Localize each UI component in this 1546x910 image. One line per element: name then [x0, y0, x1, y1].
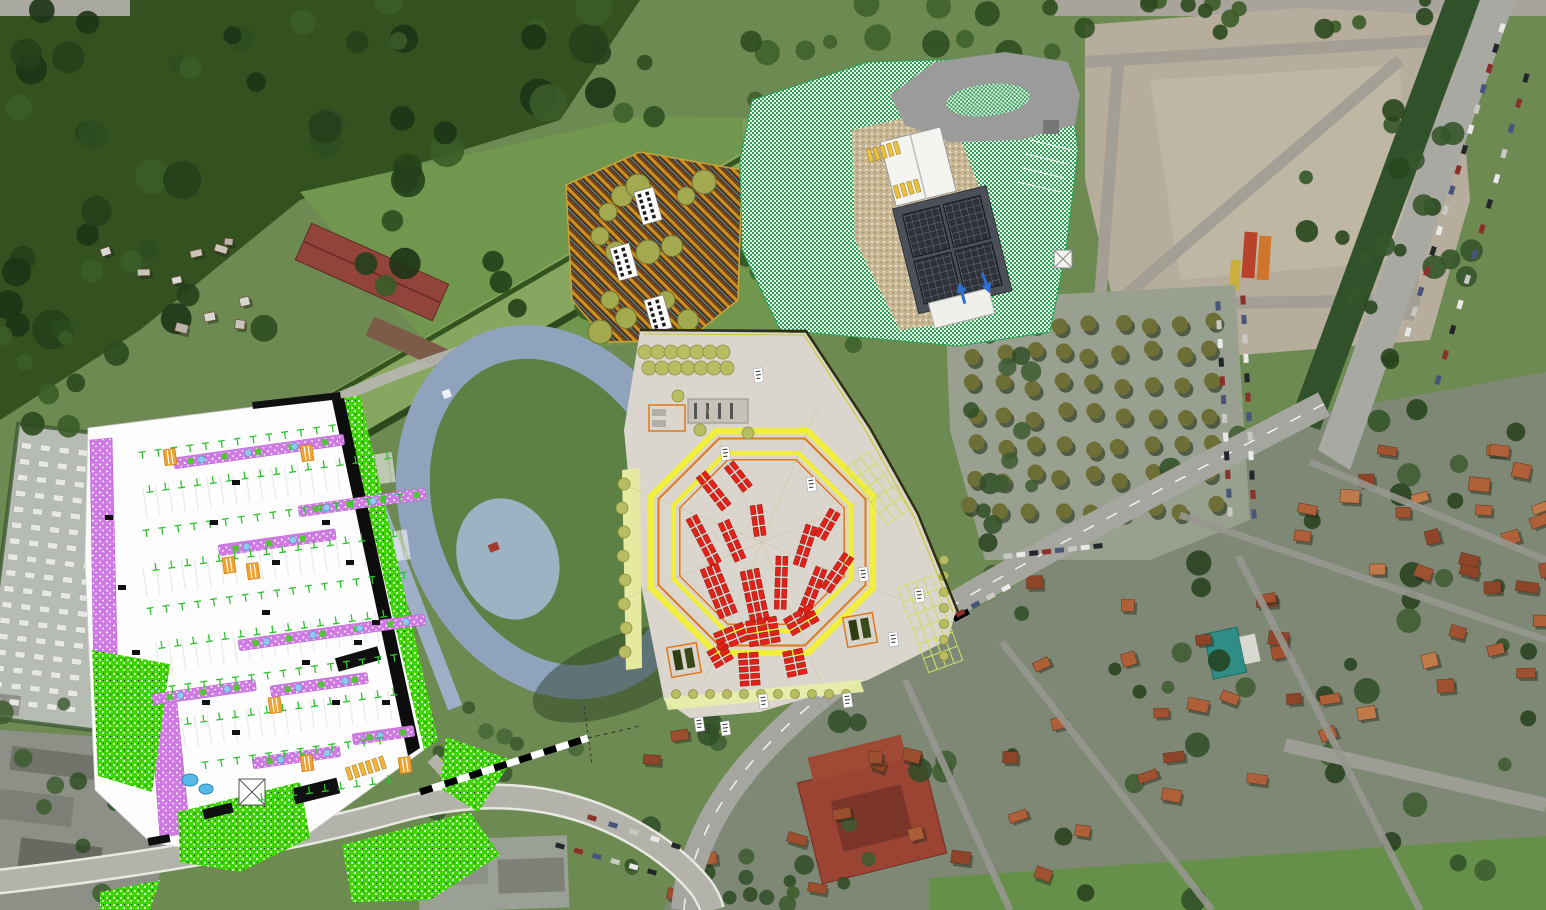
grave	[41, 590, 52, 597]
grave	[28, 540, 39, 547]
plan-tree	[825, 690, 834, 699]
tree	[36, 799, 52, 815]
market-stall	[782, 578, 787, 587]
tree	[389, 248, 420, 279]
market-stall	[782, 567, 787, 576]
grave	[24, 572, 35, 579]
tree	[1198, 3, 1213, 18]
grave	[76, 465, 87, 472]
shrub-square	[187, 458, 194, 465]
tree	[995, 408, 1011, 424]
plan-tree	[720, 361, 734, 375]
truck-stand	[667, 643, 702, 678]
plan-tree	[694, 361, 708, 375]
tree	[1382, 99, 1405, 122]
grave	[37, 622, 48, 629]
tree	[1020, 504, 1036, 520]
shrub-square	[400, 729, 407, 736]
orange-marker	[268, 696, 282, 714]
plan-tree	[940, 652, 949, 661]
grave	[69, 674, 80, 681]
tree	[1172, 642, 1192, 662]
tree	[1368, 410, 1391, 433]
market-stall	[757, 504, 763, 514]
house-roof	[1154, 708, 1169, 718]
tree	[1178, 410, 1194, 426]
orange-marker	[163, 448, 177, 466]
shrub-square	[318, 681, 325, 688]
tree	[828, 710, 851, 733]
plan-tree	[791, 690, 800, 699]
tree	[1447, 493, 1463, 509]
tree	[180, 56, 202, 78]
parked-car	[1224, 451, 1230, 460]
house-roof	[1002, 751, 1018, 763]
tree	[1044, 43, 1061, 60]
plan-tree	[617, 550, 629, 562]
tree	[482, 251, 503, 272]
tree	[382, 210, 404, 232]
parked-car	[1244, 373, 1249, 382]
market-stall	[783, 556, 788, 565]
tree	[76, 839, 91, 854]
house-roof	[235, 320, 245, 330]
plan-tag	[118, 585, 126, 590]
tree	[1145, 377, 1161, 393]
parked-car	[1242, 334, 1247, 343]
market-stall	[752, 516, 758, 526]
tree	[1116, 315, 1132, 331]
grave	[36, 476, 47, 483]
grave	[22, 588, 33, 595]
plan-tree	[716, 345, 730, 359]
tree	[1374, 235, 1395, 256]
tree	[5, 95, 31, 121]
tree	[963, 402, 979, 418]
grave	[9, 538, 20, 545]
tree	[1133, 685, 1147, 699]
tree	[784, 875, 797, 888]
tree	[1172, 316, 1188, 332]
tree	[1416, 8, 1433, 25]
tree	[1086, 442, 1102, 458]
market-stall	[758, 515, 764, 525]
tree	[861, 852, 876, 867]
tree	[139, 240, 159, 260]
tree	[1364, 300, 1378, 314]
market-stall	[753, 527, 759, 537]
parked-car	[1222, 414, 1228, 423]
grave	[68, 529, 79, 536]
plan-tree	[742, 427, 754, 439]
parked-car	[1068, 546, 1077, 552]
tree	[246, 72, 266, 92]
tree	[1057, 436, 1073, 452]
tree	[57, 698, 70, 711]
grave	[50, 672, 61, 679]
tree	[508, 299, 527, 318]
plan-tree	[740, 690, 749, 699]
tree	[969, 434, 985, 450]
tree	[1204, 373, 1220, 389]
house-roof	[1437, 679, 1455, 693]
parked-car	[1247, 432, 1252, 441]
tree	[375, 275, 397, 297]
tree	[1056, 503, 1072, 519]
tree	[1435, 569, 1453, 587]
grave	[26, 556, 37, 563]
grave	[34, 492, 45, 499]
parked-car	[1240, 295, 1245, 304]
house-roof	[137, 269, 150, 276]
label-box	[694, 717, 705, 732]
house	[1293, 530, 1313, 546]
tree	[38, 384, 59, 405]
tree	[637, 55, 652, 70]
orange-box	[300, 444, 314, 462]
plan-tag	[354, 640, 362, 645]
label-box	[806, 477, 817, 492]
orange-marker	[222, 556, 236, 574]
parked-car	[1221, 395, 1227, 404]
tree	[1344, 658, 1357, 671]
plan-tag	[232, 480, 240, 485]
market-stall	[750, 666, 759, 672]
grave	[75, 626, 86, 633]
tree	[1025, 480, 1038, 493]
tree	[69, 772, 87, 790]
tree	[1450, 855, 1467, 872]
house	[1340, 489, 1363, 507]
tree	[787, 886, 800, 899]
tree	[1314, 19, 1334, 39]
tree	[740, 31, 762, 53]
grave	[54, 640, 65, 647]
shrub-square	[252, 640, 259, 647]
tree	[1352, 15, 1366, 29]
grave	[21, 603, 32, 610]
tree	[998, 345, 1014, 361]
plan-tag	[382, 700, 390, 705]
label-box	[753, 368, 764, 383]
market-stall	[775, 567, 780, 576]
tree	[1012, 347, 1030, 365]
parked-car	[1251, 509, 1256, 518]
market-stall	[750, 659, 759, 665]
grave	[45, 558, 56, 565]
tree	[76, 11, 99, 34]
tree	[1145, 436, 1161, 452]
grave	[13, 506, 24, 513]
plan-tree	[616, 308, 637, 329]
tree	[964, 374, 980, 390]
tree	[1013, 422, 1031, 440]
tree	[1498, 758, 1512, 772]
grave	[2, 601, 13, 608]
shrub-square	[200, 689, 207, 696]
parked-car	[1217, 339, 1223, 348]
house-roof	[951, 850, 972, 865]
tree	[1406, 399, 1427, 420]
tree	[1232, 1, 1247, 16]
tree	[390, 32, 408, 50]
tree	[1354, 678, 1380, 704]
house-roof	[1026, 576, 1042, 589]
tree	[585, 77, 616, 108]
grave	[13, 667, 24, 674]
grave	[19, 619, 30, 626]
house	[1468, 477, 1493, 496]
grave	[0, 665, 5, 672]
tree	[1397, 463, 1420, 486]
parked-car	[1219, 358, 1225, 367]
grave	[11, 683, 22, 690]
shrub-square	[234, 684, 241, 691]
grave	[40, 445, 51, 452]
shrub-square	[166, 694, 173, 701]
house-roof	[1484, 581, 1501, 594]
tree	[613, 103, 633, 123]
grave	[39, 606, 50, 613]
house-roof	[1511, 462, 1532, 480]
shrub-square	[266, 540, 273, 547]
plan-tree	[774, 690, 783, 699]
tree	[1077, 884, 1094, 901]
plan-tree	[677, 187, 695, 205]
market-stall	[775, 589, 780, 598]
tree	[1208, 649, 1230, 671]
grave	[28, 701, 39, 708]
orange-box	[398, 756, 412, 774]
orange-box	[268, 696, 282, 714]
plan-tree	[706, 690, 715, 699]
tree	[104, 341, 129, 366]
grave	[32, 508, 43, 515]
market-stall	[739, 667, 748, 673]
parked-car	[1215, 301, 1221, 310]
tree	[1413, 194, 1435, 216]
tree	[58, 331, 72, 345]
parked-car	[1003, 553, 1012, 559]
tree	[462, 701, 475, 714]
grave	[32, 669, 43, 676]
grave	[17, 474, 28, 481]
plan-tree	[672, 690, 681, 699]
tree	[1054, 828, 1072, 846]
plan-tree	[664, 345, 678, 359]
plan-tree	[601, 291, 619, 309]
plan-tree	[707, 361, 721, 375]
tree	[291, 10, 316, 35]
grave	[77, 610, 88, 617]
parked-car	[1042, 549, 1051, 555]
grave	[78, 449, 89, 456]
tree	[1055, 373, 1071, 389]
market-stall	[751, 680, 760, 686]
label-box	[758, 694, 769, 709]
tree	[1086, 466, 1102, 482]
tree	[52, 41, 84, 73]
plan-tag	[372, 620, 380, 625]
tree	[1052, 318, 1068, 334]
house	[1475, 505, 1495, 519]
label-box	[720, 446, 731, 461]
plan-tag	[105, 515, 113, 520]
tree	[66, 374, 85, 393]
tree	[1084, 374, 1100, 390]
tree	[976, 503, 991, 518]
grave	[62, 576, 73, 583]
tree	[1359, 251, 1373, 265]
plan-tag	[322, 520, 330, 525]
house-roof	[224, 238, 233, 245]
tree	[346, 31, 368, 53]
tree	[47, 777, 65, 795]
tree	[1080, 315, 1096, 331]
tree	[1520, 710, 1536, 726]
plan-tree	[588, 320, 612, 344]
house	[1488, 444, 1512, 461]
grave	[21, 442, 32, 449]
house-roof	[1396, 507, 1411, 518]
house-roof	[1286, 693, 1301, 704]
grave	[59, 447, 70, 454]
grave	[67, 690, 78, 697]
tree	[1042, 0, 1058, 15]
tree	[251, 315, 278, 342]
tree	[1208, 496, 1224, 512]
plan-tree	[616, 502, 628, 514]
grave	[11, 522, 22, 529]
plan-tree	[703, 345, 717, 359]
grave	[57, 463, 68, 470]
tree	[964, 349, 980, 365]
plan-tree	[672, 390, 684, 402]
grave	[51, 511, 62, 518]
tree	[11, 39, 42, 70]
tree	[1394, 244, 1407, 257]
tree	[1213, 24, 1228, 39]
orange-marker	[246, 562, 260, 580]
plan-tree	[723, 690, 732, 699]
market-stall	[760, 526, 766, 536]
tree	[743, 887, 758, 902]
tree	[1051, 470, 1067, 486]
house-roof	[1370, 564, 1386, 575]
tree	[739, 870, 754, 885]
plan-tree	[642, 361, 656, 375]
house	[1370, 564, 1388, 578]
tree	[1185, 733, 1210, 758]
plan-tag	[302, 660, 310, 665]
tree	[1027, 464, 1043, 480]
house	[1026, 576, 1045, 592]
grave	[30, 524, 41, 531]
tree	[1086, 403, 1102, 419]
tree	[1201, 409, 1217, 425]
canopy-square	[239, 779, 265, 805]
market-stall	[740, 674, 749, 680]
grave	[0, 617, 10, 624]
plan-tag	[272, 560, 280, 565]
parked-car	[1055, 547, 1064, 553]
house	[1002, 751, 1020, 766]
tree	[530, 84, 568, 122]
plan-tree	[618, 478, 630, 490]
tree	[355, 252, 378, 275]
grave	[19, 458, 30, 465]
tree	[177, 284, 200, 307]
plan-tag	[262, 610, 270, 615]
tree	[1111, 345, 1127, 361]
plan-tree	[940, 620, 949, 629]
tree	[1296, 220, 1318, 242]
tree	[496, 728, 512, 744]
parked-car	[1093, 543, 1102, 549]
tree	[1335, 230, 1349, 244]
tree	[1389, 158, 1410, 179]
tree	[979, 533, 998, 552]
tree	[394, 169, 418, 193]
market-stall	[776, 556, 781, 565]
shrub-square	[322, 439, 329, 446]
parked-car	[1227, 507, 1233, 516]
parked-car	[1016, 552, 1025, 558]
orange-box	[246, 562, 260, 580]
orange-box	[163, 448, 177, 466]
tree	[1074, 18, 1095, 39]
tree	[521, 24, 546, 49]
tree	[478, 723, 494, 739]
plan-tag	[210, 520, 218, 525]
tree	[163, 161, 201, 199]
house-roof	[1340, 489, 1360, 503]
plan-tree	[940, 604, 949, 613]
parked-car	[1249, 470, 1254, 479]
plan-tree	[620, 622, 632, 634]
tree	[1520, 643, 1537, 660]
tree	[1236, 677, 1256, 697]
tree	[1450, 455, 1468, 473]
tree	[308, 110, 341, 143]
house	[643, 754, 663, 768]
tree	[1056, 343, 1072, 359]
tree	[975, 1, 1000, 26]
grave	[49, 526, 60, 533]
tree	[1144, 341, 1160, 357]
tree	[864, 24, 891, 51]
tree	[81, 196, 112, 227]
house-roof	[1294, 530, 1312, 542]
grave	[34, 653, 45, 660]
grave	[15, 490, 26, 497]
tree	[1149, 409, 1165, 425]
plan-tag	[346, 560, 354, 565]
tree	[1001, 452, 1018, 469]
plan-tree	[678, 310, 699, 331]
plan-tree	[619, 646, 631, 658]
truck-stand	[843, 613, 878, 648]
house-roof	[204, 312, 216, 322]
tree	[78, 120, 107, 149]
grave	[64, 560, 75, 567]
parked-car	[1243, 354, 1248, 363]
tree	[1382, 352, 1399, 369]
grave	[15, 651, 26, 658]
tree	[57, 415, 80, 438]
shrub-square	[387, 621, 394, 628]
house-roof	[1489, 444, 1510, 458]
